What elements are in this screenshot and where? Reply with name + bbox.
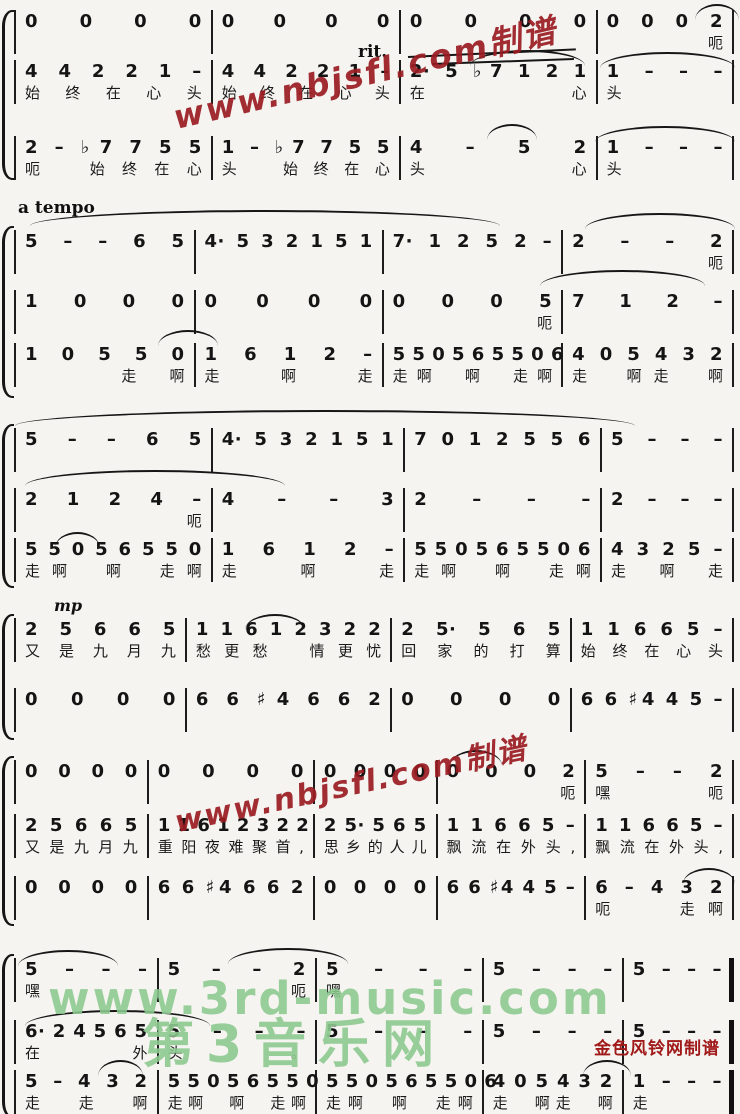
measure: 0 0 0 0	[315, 760, 438, 804]
lyric-line: 走 啊走 啊	[493, 1094, 613, 1114]
lyric-line: 又是九月九	[25, 642, 176, 662]
system-6: 5 – – –嘿5 – – 2 呃5 – – –嘿5 – – –5 – – – …	[14, 958, 734, 1114]
measure: 5 – – –	[602, 428, 734, 472]
lyric-line	[25, 452, 202, 472]
system-4: 2 5 6 6 5又是九月九1 1 6 1 2 3 2 2愁更愁 情更忧2 5·…	[14, 618, 734, 732]
measure: 5 – 4 3 2走 走 啊	[14, 1070, 159, 1114]
system-bracket	[2, 226, 14, 398]
measure: 0 0 0 0	[14, 876, 149, 920]
lyric-line: 始终在心头	[25, 84, 202, 104]
lyric-line: 呃	[168, 982, 306, 1002]
measure: 4· 5 3 2 1 5 1	[213, 428, 405, 472]
notes-line: 4 – – 3	[222, 488, 394, 512]
measure: 1 1 6 6 5 –始终在心头	[572, 618, 734, 662]
notes-line: 5 – – 2	[595, 760, 723, 784]
voice-row-3: 0 0 0 06 6 ♯4 6 6 20 0 0 06 6 ♯4 4 5 –6 …	[14, 876, 734, 920]
notes-line: 0 0 0 0	[25, 876, 138, 900]
measure: 0 0 0 5 呃	[384, 290, 564, 334]
lyric-line: 始终在心头	[222, 84, 390, 104]
notes-line: 0 0 0 0	[324, 876, 427, 900]
measure: 1 1 6 6 5 –飘流在外头,	[438, 814, 587, 858]
slur-arc	[695, 4, 739, 20]
slur-arc	[245, 614, 305, 630]
notes-line: 1 1 6 1 2 3 2 2	[158, 814, 304, 838]
voice-row-2: 2 5 6 6 5又是九月九1 1 6 1 2 3 2 2重阳夜难聚首,2 5·…	[14, 814, 734, 858]
notes-line: 2 1 2 4 –	[25, 488, 202, 512]
voice-row-1: 5 – – 6 54· 5 3 2 1 5 17· 1 2 5 2 –2 – –…	[14, 230, 734, 274]
measure: 0 0 0 0	[149, 760, 315, 804]
measure: 5 5 0 5 6 5 5 0 6走啊 啊 走啊	[384, 343, 564, 387]
notes-line: 2 – – 2	[572, 230, 723, 254]
lyric-line: 嘿	[326, 982, 473, 1002]
lyric-line: 又是九月九	[25, 838, 138, 858]
measure: 7· 1 2 5 2 –	[384, 230, 564, 274]
measure: 5 – – –嘿	[317, 958, 484, 1002]
measure: 1 0 5 5 0 走啊	[14, 343, 196, 387]
lyric-line: 呃	[393, 314, 553, 334]
lyric-line: 走啊 啊 走啊	[414, 562, 591, 582]
notes-line: 5 5 0 5 6 5 5 0 6	[326, 1070, 473, 1094]
measure: 0 0 0 2 呃	[438, 760, 587, 804]
lyric-line	[611, 512, 723, 532]
measure: 4 4 2 2 1 –始终在心头	[14, 60, 213, 104]
phrase-slur-arc	[15, 410, 635, 426]
lyric-line	[393, 254, 553, 274]
lyric-line: 头。	[168, 1044, 306, 1064]
notes-line: 2 – – –	[611, 488, 723, 512]
measure: 2· 5 ♭7 1 2 1在 心	[401, 60, 598, 104]
measure: 2 5 6 6 5又是九月九	[14, 618, 187, 662]
measure: 5 – – –	[317, 1020, 484, 1064]
slur-arc	[585, 213, 735, 229]
voice-row-2: 2 1 2 4 – 呃4 – – 32 – – –2 – – –	[14, 488, 734, 532]
measure: 2 – – 2 呃	[563, 230, 734, 274]
voice-row-1: 5 – – 6 54· 5 3 2 1 5 17 0 1 2 5 5 65 – …	[14, 428, 734, 472]
system-bracket	[2, 424, 14, 588]
lyric-line: 走 啊走 啊	[572, 367, 723, 387]
system-3: 5 – – 6 54· 5 3 2 1 5 17 0 1 2 5 5 65 – …	[14, 428, 734, 582]
notes-line: 5 5 0 5 6 5 5 0 6	[414, 538, 591, 562]
notes-line: 1 1 6 6 5 –	[581, 618, 723, 642]
lyric-line: 头 始终在心	[222, 160, 390, 180]
notes-line: 0 0 0 0	[324, 760, 427, 784]
measure: 2 – ♭7 7 5 5呃 始终在心	[14, 136, 213, 180]
system-5: 0 0 0 00 0 0 00 0 0 00 0 0 2 呃5 – – 2嘿 呃…	[14, 760, 734, 920]
measure: 7 0 1 2 5 5 6	[405, 428, 602, 472]
lyric-line	[25, 254, 185, 274]
notes-line: 0 0 0 0	[401, 688, 561, 712]
notes-line: 7· 1 2 5 2 –	[393, 230, 553, 254]
lyric-line: 头	[607, 160, 723, 180]
measure: 2 – – –	[405, 488, 602, 532]
notes-line: 2 5 6 6 5	[25, 814, 138, 838]
lyric-line: 呃 走啊	[595, 900, 723, 920]
notes-line: 7 0 1 2 5 5 6	[414, 428, 591, 452]
lyric-line	[205, 314, 373, 334]
measure: 1 1 6 1 2 3 2 2重阳夜难聚首,	[149, 814, 315, 858]
measure: 0 0 0 0	[392, 688, 572, 732]
measure: 1 – – –头	[598, 136, 734, 180]
lyric-line	[25, 784, 138, 804]
lyric-line	[447, 900, 576, 920]
notes-line: 6 6 ♯4 4 5 –	[581, 688, 723, 712]
notes-line: 4 4 2 2 1 –	[222, 60, 390, 84]
notes-line: 5 – – –	[326, 1020, 473, 1044]
measure: 5 – – 6 5	[14, 230, 196, 274]
measure: 6 6 ♯4 4 5 –	[438, 876, 587, 920]
lyric-line: 思乡的人儿	[324, 838, 427, 858]
measure: 5 – – –	[624, 1020, 734, 1064]
lyric-line: 走啊 啊 走啊	[326, 1094, 473, 1114]
voice-row-1: 0 0 0 00 0 0 00 0 0 00 0 0 2 呃5 – – 2嘿 呃	[14, 760, 734, 804]
lyric-line: 走啊走	[205, 367, 373, 387]
measure: 1 6 1 2 –走啊走	[213, 538, 405, 582]
lyric-line	[222, 512, 394, 532]
measure: 0 0 0 0	[196, 290, 384, 334]
lyric-line: 头 心	[410, 160, 587, 180]
notes-line: 2 – – –	[414, 488, 591, 512]
lyric-line	[158, 784, 304, 804]
system-2: 5 – – 6 54· 5 3 2 1 5 17· 1 2 5 2 –2 – –…	[14, 230, 734, 387]
lyric-line	[324, 784, 427, 804]
measure: 2 5 6 6 5又是九月九	[14, 814, 149, 858]
lyric-line	[611, 452, 723, 472]
lyric-line	[581, 712, 723, 732]
measure: 4· 5 3 2 1 5 1	[196, 230, 384, 274]
notes-line: 1 – – –	[633, 1070, 722, 1094]
notes-line: 0 0 0 0	[158, 760, 304, 784]
notes-line: 5 – – 6 5	[25, 428, 202, 452]
lyric-line: 呃	[25, 512, 202, 532]
measure: 2 5· 5 6 5回家的打算	[392, 618, 572, 662]
notes-line: 5 – – 6 5	[25, 230, 185, 254]
notes-line: 5 – – –	[611, 428, 723, 452]
notes-line: 2 5· 5 6 5	[324, 814, 427, 838]
voice-row-1: 0 0 0 00 0 0 00 0 0 00 0 0 2 呃	[14, 10, 734, 54]
notes-line: 1 6 1 2 –	[222, 538, 394, 562]
lyric-line: 走啊走	[222, 562, 394, 582]
lyric-line: 走啊	[25, 367, 185, 387]
lyric-line: 嘿 呃	[595, 784, 723, 804]
notes-line: 5 5 0 5 6 5 5 0	[25, 538, 202, 562]
measure: 1 0 0 0	[14, 290, 196, 334]
measure: 5 – – –	[484, 958, 624, 1002]
lyric-line	[25, 314, 185, 334]
measure: 4 3 2 5 –走 啊 走	[602, 538, 734, 582]
notes-line: 1 1 6 6 5 –	[447, 814, 576, 838]
lyric-line: 嘿	[25, 982, 148, 1002]
lyric-line	[414, 512, 591, 532]
lyric-line: 飘流在外头,	[447, 838, 576, 858]
system-bracket	[2, 756, 14, 926]
notes-line: 0 0 0 0	[205, 290, 373, 314]
lyric-line	[414, 452, 591, 472]
measure: 6 6 ♯4 6 6 2	[187, 688, 392, 732]
measure: 5 – – 6 5	[14, 428, 213, 472]
lyric-line: 重阳夜难聚首,	[158, 838, 304, 858]
voice-row-1: 5 – – –嘿5 – – 2 呃5 – – –嘿5 – – –5 – – –	[14, 958, 734, 1002]
lyric-line	[410, 34, 587, 54]
lyric-line	[25, 900, 138, 920]
measure: 2 5· 5 6 5思乡的人儿	[315, 814, 438, 858]
lyric-line: 回家的打算	[401, 642, 561, 662]
notes-line: 1 6 1 2 –	[205, 343, 373, 367]
lyric-line: 始终在心头	[581, 642, 723, 662]
notes-line: 4· 5 3 2 1 5 1	[222, 428, 394, 452]
measure: 4 0 5 4 3 2走 啊走 啊	[484, 1070, 624, 1114]
lyric-line: 走	[633, 1094, 722, 1114]
lyric-line	[196, 712, 381, 732]
lyric-line: 走啊 啊 走啊	[393, 367, 553, 387]
notes-line: 4 3 2 5 –	[611, 538, 723, 562]
measure: 5 5 0 5 6 5 5 0走啊 啊 走啊	[14, 538, 213, 582]
notes-line: 2 5· 5 6 5	[401, 618, 561, 642]
lyric-line	[222, 452, 394, 472]
measure: 4 – – 3	[213, 488, 405, 532]
lyric-line: 头	[607, 84, 723, 104]
measure: 5 – – 2 呃	[159, 958, 317, 1002]
score-page: rit. a tempo mp 0 0 0 00 0 0 00 0 0 00 0…	[0, 0, 740, 1114]
phrase-slur-arc	[30, 210, 500, 226]
notes-line: 0 0 0 0	[222, 10, 390, 34]
measure: 1 6 1 2 –走啊走	[196, 343, 384, 387]
lyric-line: 呃 始终在心	[25, 160, 202, 180]
notes-line: 4 4 2 2 1 –	[25, 60, 202, 84]
notes-line: 4 0 5 4 3 2	[572, 343, 723, 367]
system-bracket	[2, 954, 14, 1114]
notes-line: 6 6 ♯4 6 6 2	[158, 876, 304, 900]
voice-row-3: 1 0 5 5 0 走啊1 6 1 2 –走啊走5 5 0 5 6 5 5 0 …	[14, 343, 734, 387]
notes-line: 1 0 0 0	[25, 290, 185, 314]
lyric-line: 愁更愁 情更忧	[196, 642, 381, 662]
system-1: 0 0 0 00 0 0 00 0 0 00 0 0 2 呃 4 4 2 2 1…	[14, 10, 734, 180]
lyric-line	[493, 982, 613, 1002]
lyric-line	[633, 1044, 722, 1064]
notes-line: 0 0 0 5	[393, 290, 553, 314]
measure: 1 – ♭7 7 5 5头 始终在心	[213, 136, 401, 180]
notes-line: 6 6 ♯4 6 6 2	[196, 688, 381, 712]
measure: 7 1 2 –	[563, 290, 734, 334]
measure: 5 – – –	[484, 1020, 624, 1064]
tie-arc	[450, 750, 502, 766]
system-bracket	[2, 10, 14, 180]
measure: 6 6 ♯4 6 6 2	[149, 876, 315, 920]
lyric-line	[572, 314, 723, 334]
notes-line: 1 1 6 6 5 –	[595, 814, 723, 838]
measure: 5 5 0 5 6 5 5 0 6走啊 啊 走啊	[405, 538, 602, 582]
measure: 5 5 0 5 6 5 5 0 6走啊 啊 走啊	[317, 1070, 484, 1114]
lyric-line	[205, 254, 373, 274]
slur-arc	[228, 948, 348, 964]
measure: 6 6 ♯4 4 5 –	[572, 688, 734, 732]
measure: 0 0 0 0	[14, 10, 213, 54]
measure: 2 – – –	[602, 488, 734, 532]
measure: 5 – – –头。	[159, 1020, 317, 1064]
lyric-line: 呃	[607, 34, 723, 54]
lyric-line	[25, 712, 176, 732]
voice-row-3: 5 5 0 5 6 5 5 0走啊 啊 走啊1 6 1 2 –走啊走5 5 0 …	[14, 538, 734, 582]
notes-line: 4· 5 3 2 1 5 1	[205, 230, 373, 254]
measure: 2 1 2 4 – 呃	[14, 488, 213, 532]
lyric-line	[158, 900, 304, 920]
lyric-line: 走啊 啊 走啊	[25, 562, 202, 582]
notes-line: 0 0 0 0	[25, 688, 176, 712]
voice-row-1: 2 5 6 6 5又是九月九1 1 6 1 2 3 2 2愁更愁 情更忧2 5·…	[14, 618, 734, 662]
measure: 5 – – 2嘿 呃	[586, 760, 734, 804]
notes-line: 2 5 6 6 5	[25, 618, 176, 642]
measure: 5 – – –	[624, 958, 734, 1002]
notes-line: 1 0 5 5 0	[25, 343, 185, 367]
notes-line: 1 – ♭7 7 5 5	[222, 136, 390, 160]
notes-line: 5 5 0 5 6 5 5 0	[168, 1070, 306, 1094]
measure: 1 – – –走	[624, 1070, 734, 1114]
lyric-line: 在 心	[410, 84, 587, 104]
measure: 0 0 0 0	[401, 10, 598, 54]
voice-row-3: 5 – 4 3 2走 走 啊5 5 0 5 6 5 5 0走啊 啊 走啊5 5 …	[14, 1070, 734, 1114]
lyric-line	[326, 1044, 473, 1064]
lyric-line: 走 走 啊	[25, 1094, 148, 1114]
voice-row-2: 0 0 0 06 6 ♯4 6 6 20 0 0 06 6 ♯4 4 5 –	[14, 688, 734, 732]
measure: 4 4 2 2 1 –始终在心头	[213, 60, 401, 104]
lyric-line	[25, 34, 202, 54]
measure: 0 0 0 0	[213, 10, 401, 54]
measure: 0 0 0 0	[14, 688, 187, 732]
voice-row-2: 6· 2 4 5 6 5在 外5 – – –头。5 – – –5 – – –5 …	[14, 1020, 734, 1064]
mp-dynamic-mark: mp	[54, 596, 82, 615]
measure: 4 0 5 4 3 2走 啊走 啊	[563, 343, 734, 387]
notes-line: 5 5 0 5 6 5 5 0 6	[393, 343, 553, 367]
notes-line: 5 – – –	[633, 1020, 722, 1044]
lyric-line	[222, 34, 390, 54]
lyric-line	[633, 982, 722, 1002]
measure: 0 0 0 0	[14, 760, 149, 804]
measure: 6· 2 4 5 6 5在 外	[14, 1020, 159, 1064]
lyric-line: 呃	[447, 784, 576, 804]
notes-line: 7 1 2 –	[572, 290, 723, 314]
notes-line: 6 6 ♯4 4 5 –	[447, 876, 576, 900]
system-bracket	[2, 614, 14, 740]
notes-line: 0 0 0 0	[410, 10, 587, 34]
lyric-line: 飘流在外头,	[595, 838, 723, 858]
notes-line: 0 0 0 0	[25, 10, 202, 34]
measure: 4 – 5 2头 心	[401, 136, 598, 180]
measure: 0 0 0 0	[315, 876, 438, 920]
measure: 1 1 6 6 5 –飘流在外头,	[586, 814, 734, 858]
lyric-line	[324, 900, 427, 920]
voice-row-2: 1 0 0 00 0 0 00 0 0 5 呃7 1 2 –	[14, 290, 734, 334]
lyric-line: 走 啊 走	[611, 562, 723, 582]
notes-line: 5 – – –	[493, 958, 613, 982]
lyric-line	[401, 712, 561, 732]
notes-line: 5 – – –	[633, 958, 722, 982]
notes-line: 2 – ♭7 7 5 5	[25, 136, 202, 160]
measure: 5 5 0 5 6 5 5 0走啊 啊 走啊	[159, 1070, 317, 1114]
notes-line: 0 0 0 0	[25, 760, 138, 784]
slur-arc	[18, 950, 118, 966]
lyric-line: 走啊 啊 走啊	[168, 1094, 306, 1114]
notes-line: 5 – – –	[326, 958, 473, 982]
voice-row-3: 2 – ♭7 7 5 5呃 始终在心1 – ♭7 7 5 5头 始终在心4 – …	[14, 136, 734, 180]
notes-line: 5 – – –	[493, 1020, 613, 1044]
